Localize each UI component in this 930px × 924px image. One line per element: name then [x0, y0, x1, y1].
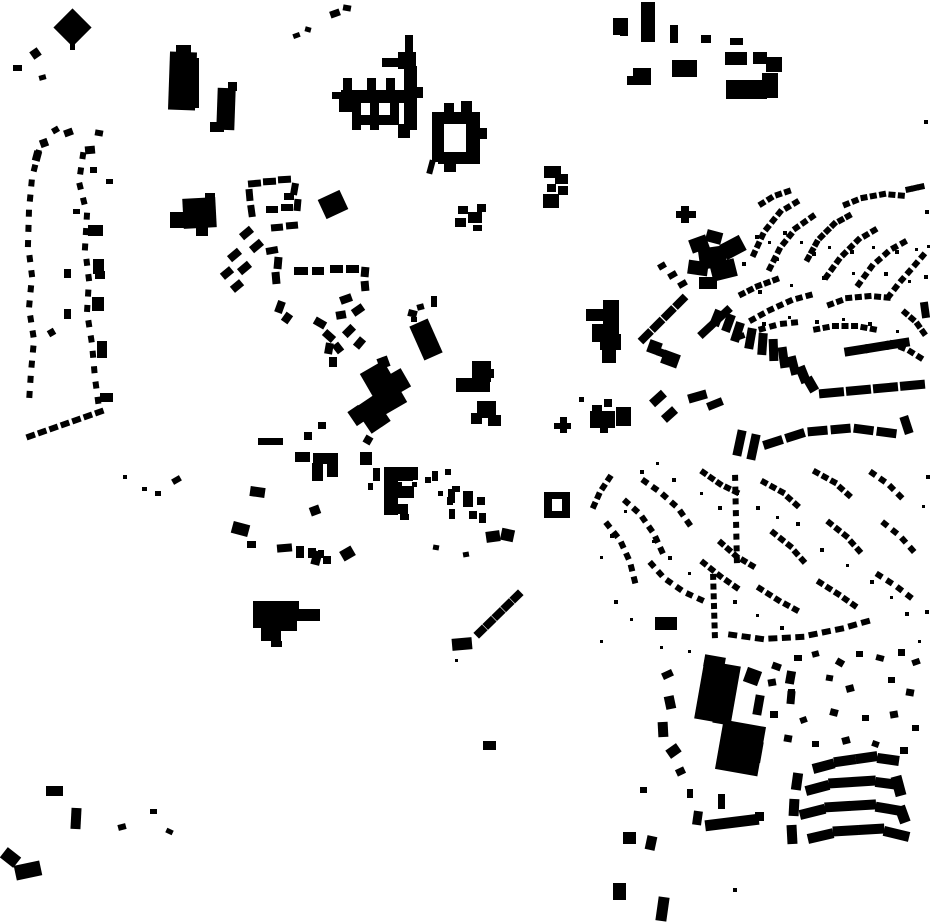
row-house-rect — [874, 293, 882, 300]
building-rect — [769, 339, 779, 361]
row-house-rect — [760, 478, 769, 487]
small-building-dot — [614, 600, 618, 604]
building-rect — [106, 179, 113, 184]
building-rect — [51, 126, 60, 135]
building-rect — [323, 556, 331, 564]
row-house-rect — [672, 294, 688, 310]
building-rect — [170, 212, 184, 228]
building-rect — [544, 511, 570, 518]
row-house-rect — [785, 297, 794, 305]
building-rect — [547, 184, 556, 192]
building-rect — [670, 25, 678, 43]
small-building-dot — [688, 650, 691, 653]
row-house-rect — [915, 353, 924, 362]
row-house-rect — [854, 546, 863, 555]
row-house-rect — [848, 538, 857, 547]
row-house-rect — [728, 631, 738, 638]
row-house-rect — [792, 223, 801, 232]
building-rect — [117, 823, 126, 831]
row-house-rect — [807, 426, 828, 437]
row-house-rect — [765, 194, 774, 203]
building-rect — [13, 65, 22, 71]
building-rect — [841, 736, 851, 745]
row-house-rect — [851, 197, 860, 205]
building-rect — [39, 138, 49, 148]
building-rect — [322, 329, 336, 343]
row-house-rect — [878, 476, 887, 485]
row-house-rect — [83, 228, 89, 235]
building-rect — [483, 741, 496, 750]
row-house-rect — [820, 473, 829, 482]
building-rect — [640, 787, 647, 793]
building-rect — [294, 267, 308, 275]
small-building-dot — [925, 210, 929, 214]
row-house-rect — [734, 545, 740, 551]
row-house-rect — [798, 556, 807, 565]
row-house-rect — [875, 571, 884, 580]
row-house-rect — [776, 301, 785, 309]
row-house-rect — [603, 520, 612, 529]
building-rect — [277, 543, 293, 552]
row-house-rect — [83, 258, 90, 266]
building-rect — [249, 239, 264, 253]
row-house-rect — [25, 240, 31, 247]
building-rect — [271, 641, 282, 647]
row-house-rect — [93, 381, 100, 389]
building-rect — [265, 246, 278, 255]
building-rect — [286, 221, 299, 229]
building-rect — [368, 483, 373, 490]
row-house-rect — [747, 561, 756, 570]
building-rect — [239, 226, 254, 240]
row-house-rect — [846, 385, 872, 396]
building-rect — [448, 489, 455, 503]
row-house-rect — [795, 294, 803, 302]
row-house-rect — [899, 238, 908, 247]
building-rect — [196, 226, 208, 236]
row-house-rect — [883, 826, 911, 842]
row-house-rect — [804, 254, 813, 263]
building-rect — [743, 667, 762, 686]
row-house-rect — [855, 751, 878, 764]
row-house-rect — [757, 199, 766, 208]
building-rect — [661, 669, 674, 680]
building-rect — [785, 670, 796, 684]
building-rect — [485, 530, 500, 543]
row-house-rect — [741, 633, 751, 640]
building-rect — [469, 511, 477, 519]
row-house-rect — [847, 621, 857, 629]
row-house-rect — [898, 192, 906, 199]
row-house-rect — [748, 315, 757, 324]
building-rect — [762, 73, 778, 98]
small-building-dot — [800, 241, 803, 244]
small-building-dot — [768, 241, 771, 244]
building-rect — [304, 26, 311, 32]
row-house-rect — [869, 192, 877, 199]
row-house-rect — [27, 376, 33, 383]
small-building-dot — [895, 250, 899, 254]
building-rect — [655, 617, 677, 630]
row-house-rect — [710, 574, 716, 580]
row-house-rect — [905, 592, 914, 601]
building-rect — [100, 393, 113, 402]
building-rect — [155, 491, 161, 496]
row-house-rect — [26, 300, 33, 308]
row-house-rect — [900, 380, 926, 391]
row-house-rect — [812, 759, 836, 774]
row-house-rect — [890, 527, 899, 536]
small-building-dot — [718, 506, 722, 510]
row-house-rect — [860, 618, 870, 626]
building-rect — [361, 281, 370, 292]
row-house-rect — [908, 314, 917, 323]
building-rect — [398, 124, 410, 138]
building-rect — [64, 269, 71, 278]
row-house-rect — [769, 322, 777, 330]
building-rect — [296, 546, 304, 558]
building-rect — [701, 35, 711, 43]
building-rect — [613, 883, 626, 900]
building-rect — [600, 334, 621, 350]
building-rect — [783, 734, 792, 742]
small-building-dot — [776, 258, 779, 261]
row-house-rect — [618, 541, 626, 550]
row-house-rect — [26, 391, 32, 398]
row-house-rect — [91, 366, 98, 374]
small-building-dot — [780, 626, 784, 630]
row-house-rect — [769, 529, 778, 538]
building-rect — [771, 662, 782, 672]
building-rect — [438, 491, 443, 496]
building-rect — [313, 453, 338, 464]
building-rect — [912, 725, 919, 731]
row-house-rect — [71, 416, 81, 425]
small-building-dot — [822, 276, 826, 280]
building-rect — [227, 248, 242, 262]
building-rect — [889, 710, 898, 718]
row-house-rect — [27, 315, 34, 323]
row-house-rect — [873, 382, 899, 393]
row-house-rect — [85, 274, 92, 282]
building-rect — [237, 261, 252, 275]
small-building-dot — [896, 330, 899, 333]
small-building-dot — [872, 246, 875, 249]
row-house-rect — [791, 605, 800, 614]
row-house-rect — [732, 487, 738, 493]
building-rect — [304, 432, 312, 440]
small-building-dot — [688, 572, 691, 575]
small-building-dot — [908, 280, 911, 283]
building-rect — [390, 504, 408, 514]
small-building-dot — [922, 505, 925, 508]
building-rect — [397, 482, 402, 490]
small-building-dot — [668, 556, 672, 560]
row-house-rect — [594, 491, 602, 500]
small-building-dot — [630, 618, 633, 621]
row-house-rect — [869, 326, 877, 333]
row-house-rect — [711, 603, 717, 609]
building-rect — [463, 491, 473, 507]
small-building-dot — [600, 556, 603, 559]
row-house-rect — [733, 498, 739, 504]
building-rect — [409, 319, 442, 361]
building-rect — [97, 341, 107, 358]
row-house-rect — [791, 198, 800, 207]
small-building-dot — [924, 120, 928, 124]
building-rect — [811, 650, 819, 658]
building-rect — [726, 80, 767, 99]
building-rect — [14, 860, 43, 880]
row-house-rect — [605, 474, 614, 483]
row-house-rect — [647, 560, 656, 569]
building-rect — [339, 97, 354, 112]
row-house-rect — [732, 475, 738, 481]
map-viewport[interactable] — [0, 0, 930, 924]
small-building-dot — [905, 612, 909, 616]
building-rect — [456, 378, 490, 392]
row-house-rect — [60, 420, 70, 429]
small-building-dot — [610, 534, 614, 538]
row-house-rect — [766, 263, 774, 272]
row-house-rect — [835, 625, 845, 633]
row-house-rect — [891, 283, 900, 292]
building-rect — [477, 204, 486, 212]
row-house-rect — [829, 220, 838, 229]
building-rect — [604, 399, 612, 407]
building-rect — [343, 78, 352, 92]
row-house-rect — [844, 212, 853, 221]
building-rect — [295, 452, 310, 462]
row-house-rect — [850, 799, 877, 811]
building-rect — [281, 312, 293, 325]
row-house-rect — [879, 191, 887, 198]
building-rect — [266, 206, 278, 213]
building-rect — [410, 467, 418, 480]
building-rect — [150, 809, 157, 814]
small-building-dot — [868, 322, 872, 326]
row-house-rect — [782, 600, 791, 609]
row-house-rect — [874, 256, 883, 265]
row-house-rect — [917, 183, 925, 190]
row-house-rect — [868, 469, 877, 478]
row-house-rect — [864, 293, 872, 300]
building-rect — [706, 397, 724, 410]
row-house-rect — [661, 305, 677, 321]
building-rect — [182, 197, 217, 229]
building-rect — [645, 835, 658, 851]
row-house-rect — [885, 577, 894, 586]
row-house-rect — [590, 501, 598, 510]
small-building-dot — [790, 284, 793, 287]
building-rect — [142, 487, 147, 491]
building-rect — [390, 103, 399, 125]
row-house-rect — [733, 534, 739, 540]
small-building-dot — [850, 250, 854, 254]
building-rect — [273, 257, 282, 270]
row-house-rect — [841, 595, 850, 604]
row-house-rect — [898, 275, 907, 284]
row-house-rect — [883, 294, 891, 301]
row-house-rect — [48, 424, 58, 433]
row-house-rect — [807, 828, 835, 844]
building-rect — [249, 486, 265, 498]
building-rect — [835, 657, 845, 667]
row-house-rect — [782, 634, 791, 640]
building-rect — [725, 52, 747, 65]
row-house-rect — [840, 249, 849, 258]
row-house-rect — [855, 294, 863, 301]
small-building-dot — [924, 275, 928, 279]
row-house-rect — [774, 191, 783, 199]
row-house-rect — [816, 578, 825, 587]
row-house-rect — [800, 218, 809, 227]
building-rect — [176, 45, 191, 56]
building-rect — [675, 766, 686, 776]
row-house-rect — [82, 243, 88, 250]
building-rect — [271, 272, 280, 285]
building-rect — [681, 206, 689, 223]
row-house-rect — [30, 345, 37, 353]
row-house-rect — [784, 494, 793, 503]
building-rect — [351, 303, 365, 316]
building-rect — [444, 103, 454, 113]
building-rect — [718, 794, 725, 809]
row-house-rect — [25, 225, 31, 232]
row-house-rect — [784, 428, 806, 443]
row-house-rect — [769, 216, 778, 225]
row-house-rect — [684, 518, 693, 527]
building-rect — [461, 101, 472, 114]
row-house-rect — [774, 246, 782, 255]
building-rect — [444, 162, 456, 172]
building-rect — [449, 509, 455, 519]
row-house-rect — [855, 279, 864, 288]
building-rect — [339, 545, 356, 561]
row-house-rect — [808, 631, 818, 639]
row-house-rect — [656, 569, 665, 578]
building-rect — [826, 674, 834, 681]
row-house-rect — [84, 212, 90, 219]
row-house-rect — [904, 267, 913, 276]
row-house-rect — [80, 197, 88, 205]
row-house-rect — [828, 777, 853, 788]
building-rect — [90, 167, 97, 173]
building-rect — [247, 541, 256, 548]
row-house-rect — [649, 317, 665, 333]
building-rect — [415, 87, 423, 98]
small-building-dot — [652, 540, 655, 543]
row-house-rect — [31, 164, 39, 172]
row-house-rect — [795, 634, 804, 640]
row-house-rect — [79, 152, 86, 160]
row-house-rect — [895, 491, 904, 500]
building-rect — [471, 413, 482, 424]
row-house-rect — [639, 514, 648, 523]
small-building-dot — [884, 272, 888, 276]
building-rect — [210, 122, 224, 132]
building-rect — [875, 654, 884, 662]
row-house-rect — [822, 324, 830, 331]
row-house-rect — [833, 589, 842, 598]
row-house-rect — [88, 335, 95, 343]
building-rect — [400, 514, 409, 520]
building-rect — [73, 209, 80, 214]
building-rect — [186, 58, 199, 108]
building-rect — [309, 505, 321, 517]
row-house-rect — [853, 236, 862, 245]
row-house-rect — [885, 337, 910, 350]
row-house-rect — [707, 474, 716, 483]
row-house-rect — [836, 216, 845, 225]
row-house-rect — [712, 632, 718, 638]
building-rect — [543, 194, 559, 208]
row-house-rect — [94, 408, 104, 417]
small-building-dot — [890, 596, 893, 599]
building-rect — [455, 218, 466, 227]
row-house-rect — [646, 524, 655, 533]
row-house-rect — [805, 292, 813, 300]
row-house-rect — [861, 271, 870, 280]
row-house-rect — [821, 628, 831, 636]
building-rect — [63, 128, 74, 138]
small-building-dot — [756, 614, 759, 617]
row-house-rect — [28, 360, 35, 368]
row-house-rect — [777, 535, 786, 544]
small-building-dot — [640, 470, 644, 474]
building-rect — [329, 357, 337, 367]
building-rect — [633, 68, 651, 85]
row-house-rect — [828, 264, 837, 273]
building-rect — [627, 76, 634, 85]
row-house-rect — [711, 613, 717, 619]
row-house-rect — [731, 583, 740, 592]
row-house-rect — [792, 548, 801, 557]
building-rect — [92, 297, 104, 311]
small-building-dot — [762, 322, 766, 326]
small-building-dot — [842, 318, 845, 321]
building-rect — [346, 265, 359, 273]
figure-ground-map — [0, 0, 930, 924]
row-house-rect — [849, 601, 858, 610]
building-rect — [281, 204, 293, 211]
row-house-rect — [754, 240, 762, 249]
building-rect — [613, 18, 621, 35]
row-house-rect — [30, 330, 37, 338]
building-rect — [845, 684, 855, 693]
building-rect — [687, 390, 708, 404]
row-house-rect — [27, 285, 34, 293]
building-rect — [231, 521, 251, 537]
small-building-dot — [455, 659, 458, 662]
building-rect — [407, 309, 418, 318]
building-rect — [361, 267, 370, 278]
row-house-rect — [628, 564, 636, 572]
building-rect — [616, 407, 631, 426]
row-house-rect — [830, 424, 851, 435]
row-house-rect — [829, 477, 838, 486]
row-house-rect — [77, 167, 84, 175]
building-rect — [862, 715, 869, 721]
row-house-rect — [711, 622, 717, 628]
row-house-rect — [631, 576, 639, 584]
building-rect — [258, 438, 283, 445]
building-rect — [431, 296, 437, 307]
row-house-rect — [832, 825, 859, 837]
row-house-rect — [853, 424, 874, 436]
row-house-rect — [696, 595, 705, 603]
row-house-rect — [84, 305, 90, 312]
